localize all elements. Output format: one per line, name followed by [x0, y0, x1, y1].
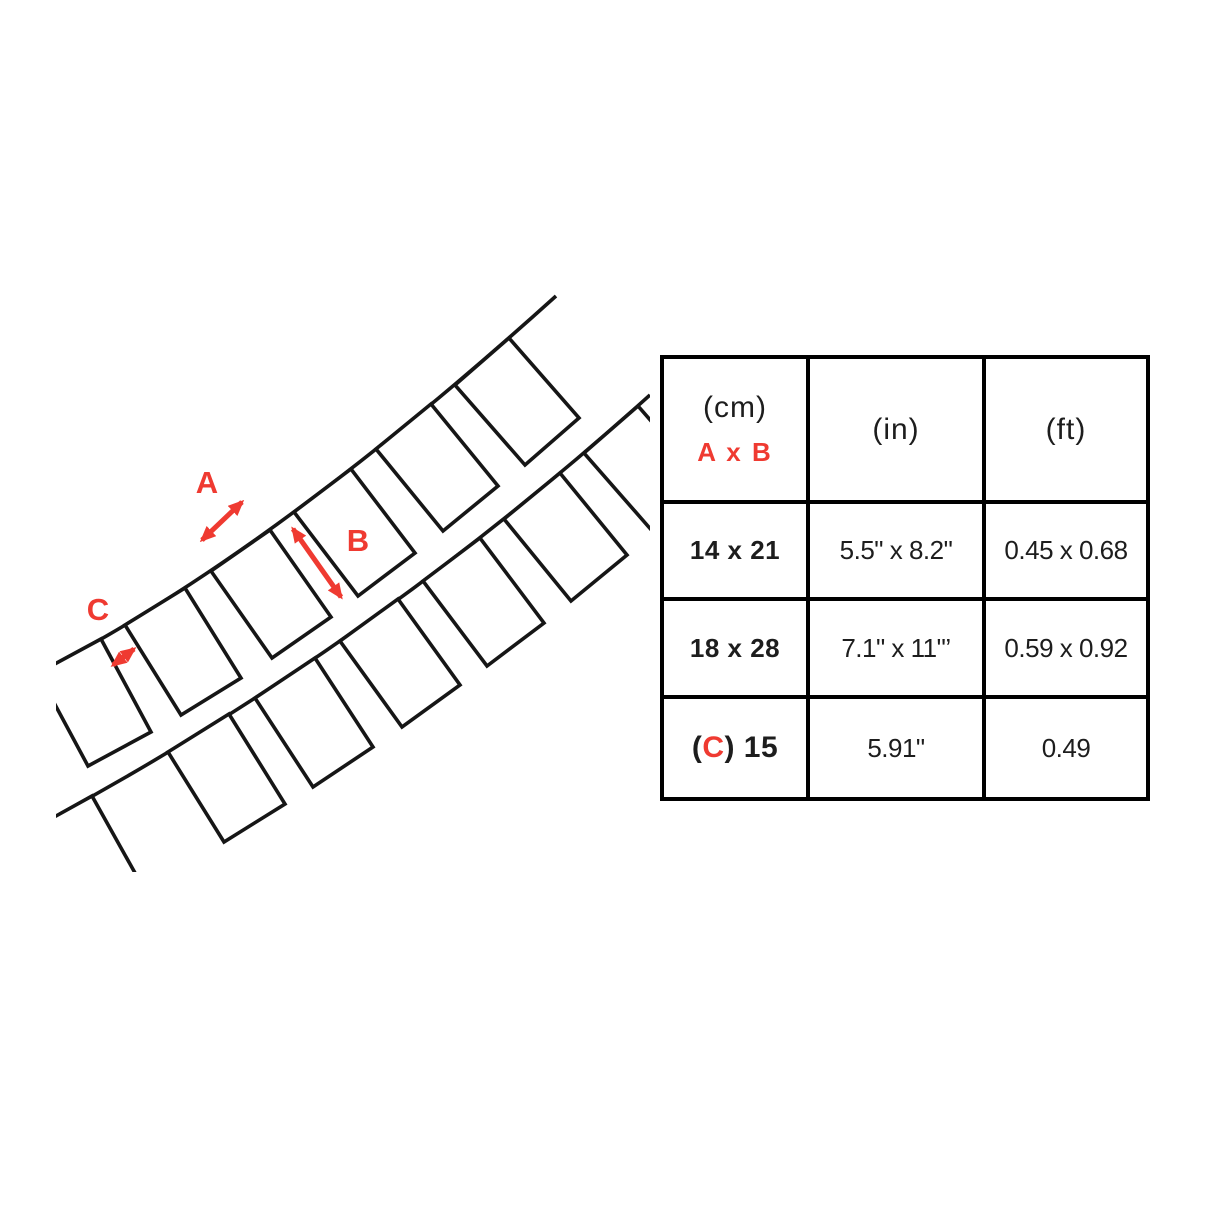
table-cell-cm-row1: 14 x 21: [664, 500, 806, 597]
paren-close-value: ) 15: [724, 731, 778, 764]
dimension-label-a: A: [196, 465, 218, 500]
dimension-label-b: B: [347, 523, 369, 558]
ft-value: 0.49: [1042, 733, 1091, 764]
in-value: 5.5" x 8.2": [840, 535, 953, 566]
table-cell-cm-row2: 18 x 28: [664, 597, 806, 695]
in-value: 7.1" x 11"’: [841, 633, 950, 664]
c-letter: C: [702, 731, 724, 764]
plate-outline: [423, 538, 544, 666]
cm-value: 14 x 21: [690, 535, 780, 566]
table-cell-ft-row2: 0.59 x 0.92: [982, 597, 1146, 695]
plate-outline: [29, 796, 144, 900]
plate-outline: [455, 338, 579, 465]
cm-value: 18 x 28: [690, 633, 780, 664]
dimensions-table: (cm) A x B (in) (ft) 14 x 21 5.5" x 8.2"…: [660, 355, 1150, 801]
table-cell-in-row1: 5.5" x 8.2": [806, 500, 982, 597]
dimension-c-arrow-icon: [113, 649, 134, 665]
plate-outline: [168, 714, 285, 842]
header-cell-ft: (ft): [982, 359, 1146, 500]
a-x-b-label: A x B: [697, 437, 773, 468]
table-cell-cm-row3: (C) 15: [664, 695, 806, 797]
curved-edging-diagram: A B C: [0, 0, 700, 900]
c-dimension-value: (C) 15: [692, 731, 778, 765]
ft-value: 0.45 x 0.68: [1004, 535, 1127, 566]
plate-outline: [255, 658, 373, 787]
plate-outline: [211, 530, 331, 658]
dimension-a-arrow-icon: [202, 502, 242, 540]
plate-outline: [504, 473, 627, 601]
paren-open: (: [692, 731, 703, 764]
plate-outline: [376, 404, 498, 531]
table-cell-in-row2: 7.1" x 11"’: [806, 597, 982, 695]
plate-outline: [340, 599, 460, 727]
table-cell-ft-row1: 0.45 x 0.68: [982, 500, 1146, 597]
cm-unit-label: (cm): [703, 391, 767, 425]
plate-outline: [38, 639, 151, 766]
ft-unit-label: (ft): [1046, 413, 1087, 447]
ft-value: 0.59 x 0.92: [1004, 633, 1127, 664]
edging-artwork: [29, 296, 700, 900]
header-cell-cm: (cm) A x B: [664, 359, 806, 500]
in-value: 5.91": [867, 733, 924, 764]
in-unit-label: (in): [872, 413, 919, 447]
header-cell-in: (in): [806, 359, 982, 500]
plate-outline: [125, 588, 241, 715]
table-cell-ft-row3: 0.49: [982, 695, 1146, 797]
dimension-label-c: C: [87, 592, 109, 627]
table-cell-in-row3: 5.91": [806, 695, 982, 797]
infographic-canvas: A B C (cm) A x B (in) (ft) 14 x 21 5.5" …: [0, 0, 1214, 1214]
